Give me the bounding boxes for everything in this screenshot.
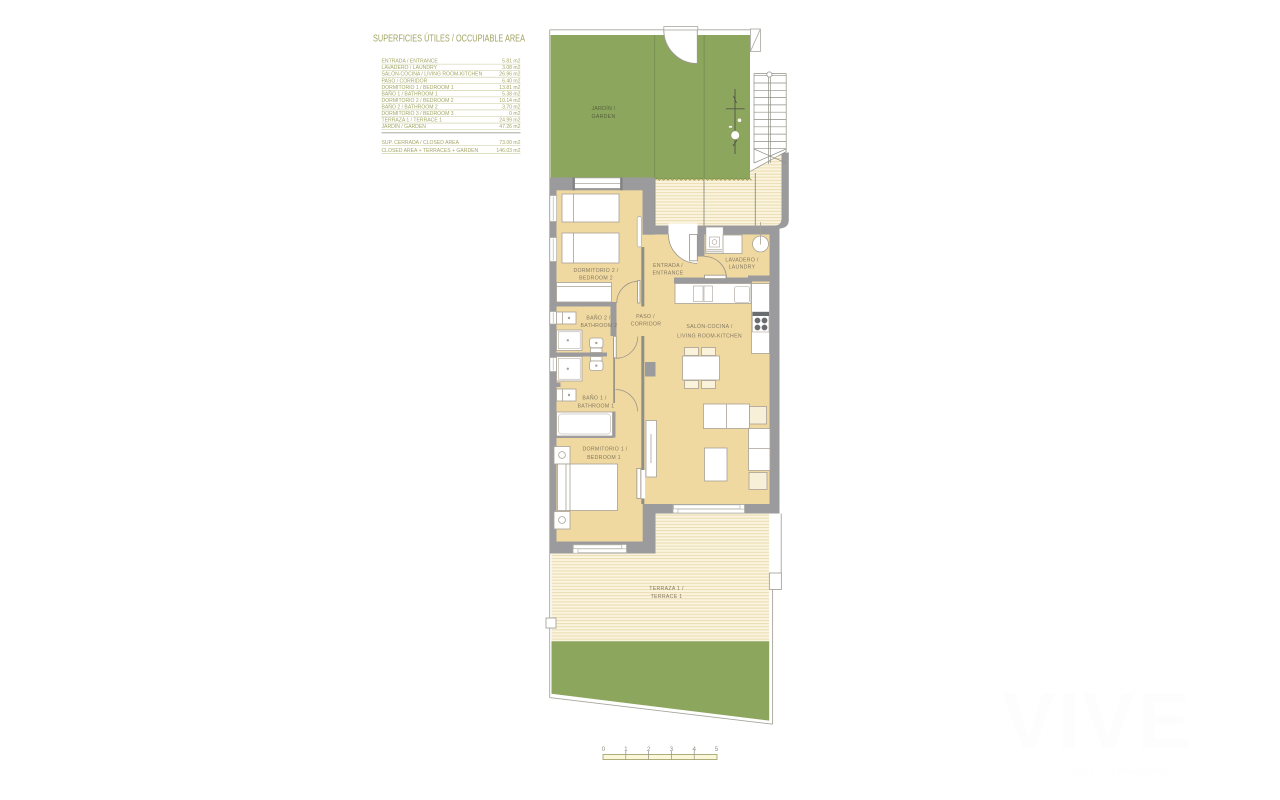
svg-text:GARDEN: GARDEN bbox=[592, 114, 616, 120]
svg-text:5: 5 bbox=[715, 746, 719, 753]
svg-text:10.14 m2: 10.14 m2 bbox=[499, 98, 520, 104]
svg-text:26.96 m2: 26.96 m2 bbox=[499, 72, 520, 78]
svg-text:DORMITORIO 1 /: DORMITORIO 1 / bbox=[582, 447, 627, 453]
svg-text:VIVE: VIVE bbox=[1002, 676, 1192, 765]
svg-text:BAÑO 1 /: BAÑO 1 / bbox=[582, 395, 607, 402]
svg-text:BAÑO 2 / BATHROOM 2: BAÑO 2 / BATHROOM 2 bbox=[382, 103, 438, 110]
svg-text:ENTRANCE: ENTRANCE bbox=[653, 271, 684, 277]
svg-text:146.03 m2: 146.03 m2 bbox=[496, 148, 520, 154]
svg-text:PASO /: PASO / bbox=[636, 314, 655, 320]
svg-text:JARDÍN /: JARDÍN / bbox=[591, 105, 615, 112]
svg-text:SALÓN-COCINA /: SALÓN-COCINA / bbox=[686, 323, 733, 330]
svg-text:ENTRADA /: ENTRADA / bbox=[653, 263, 683, 269]
svg-text:1: 1 bbox=[624, 746, 628, 753]
svg-text:SALÓN-COCINA / LIVING ROOM-KIT: SALÓN-COCINA / LIVING ROOM-KITCHEN bbox=[382, 71, 483, 78]
svg-text:3: 3 bbox=[670, 746, 674, 753]
svg-text:LAUNDRY: LAUNDRY bbox=[729, 265, 756, 271]
svg-text:2: 2 bbox=[647, 746, 651, 753]
svg-text:CLOSED AREA + TERRACES + GARDE: CLOSED AREA + TERRACES + GARDEN bbox=[382, 148, 479, 154]
svg-text:SUP. CERRADA / CLOSED AREA: SUP. CERRADA / CLOSED AREA bbox=[382, 140, 460, 146]
svg-text:5.38 m2: 5.38 m2 bbox=[502, 91, 521, 97]
svg-text:47.26 m2: 47.26 m2 bbox=[499, 124, 520, 130]
svg-text:COSTA INTERNATIONAL: COSTA INTERNATIONAL bbox=[1065, 766, 1169, 776]
svg-text:LIVING ROOM-KITCHEN: LIVING ROOM-KITCHEN bbox=[677, 334, 742, 340]
svg-text:13.81 m2: 13.81 m2 bbox=[499, 85, 520, 91]
svg-text:24.99 m2: 24.99 m2 bbox=[499, 118, 520, 124]
svg-text:JARDÍN / GARDEN: JARDÍN / GARDEN bbox=[382, 123, 427, 130]
svg-text:PASO / CORRIDOR: PASO / CORRIDOR bbox=[382, 78, 428, 84]
svg-text:BEDROOM 1: BEDROOM 1 bbox=[587, 455, 621, 461]
svg-text:DORMITORIO 3 / BEDROOM 3: DORMITORIO 3 / BEDROOM 3 bbox=[382, 111, 454, 117]
svg-text:BAÑO 2 /: BAÑO 2 / bbox=[586, 315, 611, 322]
svg-text:TERRAZA 1 / TERRACE 1: TERRAZA 1 / TERRACE 1 bbox=[382, 118, 443, 124]
svg-text:73.00 m2: 73.00 m2 bbox=[499, 140, 520, 146]
svg-text:3.08 m2: 3.08 m2 bbox=[502, 65, 521, 71]
svg-text:5.81 m2: 5.81 m2 bbox=[502, 59, 521, 65]
svg-text:TERRAZA 1 /: TERRAZA 1 / bbox=[649, 586, 684, 592]
svg-text:0: 0 bbox=[602, 746, 606, 753]
svg-text:LAVADERO /: LAVADERO / bbox=[725, 258, 759, 264]
svg-text:BATHROOM 1: BATHROOM 1 bbox=[578, 404, 615, 410]
svg-text:LAVADERO / LAUNDRY: LAVADERO / LAUNDRY bbox=[382, 65, 438, 71]
svg-text:DORMITORIO 1 / BEDROOM 1: DORMITORIO 1 / BEDROOM 1 bbox=[382, 85, 454, 91]
svg-text:6.40 m2: 6.40 m2 bbox=[502, 78, 521, 84]
svg-text:ENTRADA / ENTRANCE: ENTRADA / ENTRANCE bbox=[382, 59, 439, 65]
svg-text:BATHROOM 2: BATHROOM 2 bbox=[581, 323, 618, 329]
svg-text:4: 4 bbox=[692, 746, 696, 753]
svg-text:BAÑO 1 / BATHROOM 1: BAÑO 1 / BATHROOM 1 bbox=[382, 90, 438, 97]
svg-text:BEDROOM 2: BEDROOM 2 bbox=[579, 276, 613, 282]
svg-text:SUPERFICIES ÚTILES / OCCUPIABL: SUPERFICIES ÚTILES / OCCUPIABLE AREA bbox=[373, 34, 525, 45]
svg-text:DORMITORIO 2 /: DORMITORIO 2 / bbox=[573, 268, 618, 274]
svg-text:0 m2: 0 m2 bbox=[509, 111, 520, 117]
svg-text:CORRIDOR: CORRIDOR bbox=[631, 322, 662, 328]
svg-text:3.70 m2: 3.70 m2 bbox=[502, 104, 521, 110]
svg-text:TERRACE 1: TERRACE 1 bbox=[651, 594, 683, 600]
svg-text:DORMITORIO 2 / BEDROOM 2: DORMITORIO 2 / BEDROOM 2 bbox=[382, 98, 454, 104]
